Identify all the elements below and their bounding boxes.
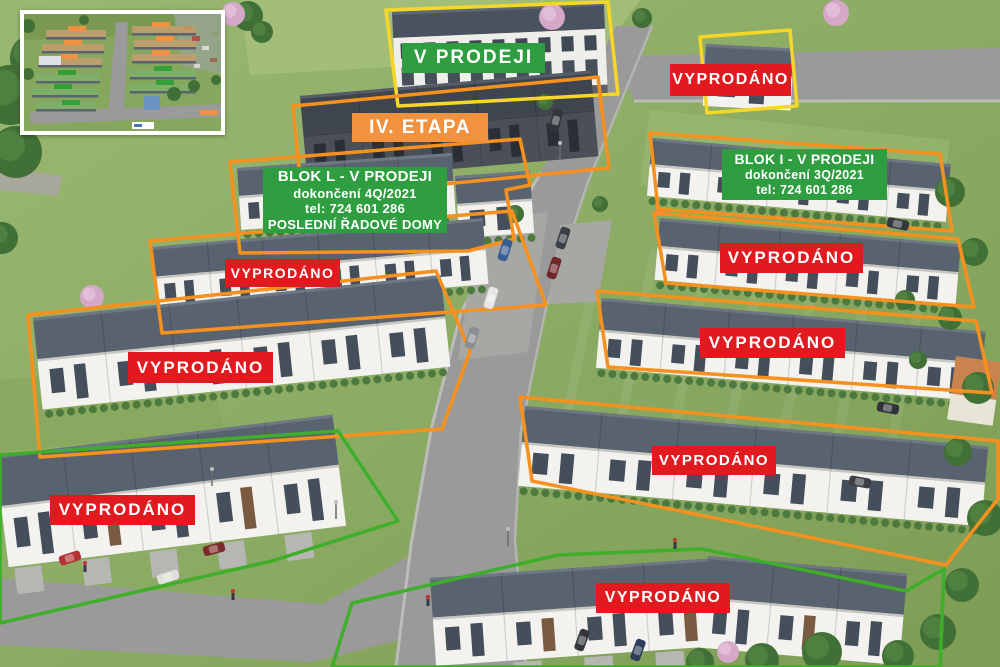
- status-badge-v-prodeji-top[interactable]: V PRODEJI: [402, 43, 545, 73]
- status-badge-vyprodano-top-right: VYPRODÁNO: [670, 64, 791, 96]
- status-badge-vyprodano-bottom-center: VYPRODÁNO: [596, 583, 730, 613]
- blok-i-phone: tel: 724 601 286: [722, 183, 887, 198]
- blok-l-completion: dokončení 4Q/2021: [263, 186, 447, 202]
- info-label-blok-i[interactable]: BLOK I - V PRODEJI dokončení 3Q/2021 tel…: [722, 149, 887, 200]
- status-badge-vyprodano-right-lower: VYPRODÁNO: [652, 446, 776, 475]
- status-badge-vyprodano-left-bottom: VYPRODÁNO: [50, 495, 195, 525]
- info-label-blok-l[interactable]: BLOK L - V PRODEJI dokončení 4Q/2021 tel…: [263, 167, 447, 233]
- status-badge-vyprodano-right-upper: VYPRODÁNO: [720, 243, 863, 273]
- status-badge-vyprodano-right-middle: VYPRODÁNO: [700, 328, 845, 358]
- development-site-plan: V PRODEJI VYPRODÁNO IV. ETAPA VYPRODÁNO …: [0, 0, 1000, 667]
- blok-i-title: BLOK I - V PRODEJI: [722, 151, 887, 168]
- status-badge-vyprodano-left-middle: VYPRODÁNO: [128, 352, 273, 383]
- blok-l-phone: tel: 724 601 286: [263, 201, 447, 217]
- blok-i-completion: dokončení 3Q/2021: [722, 168, 887, 183]
- overview-inset-map[interactable]: [20, 10, 225, 135]
- overview-inset-illustration: [24, 14, 221, 131]
- blok-l-title: BLOK L - V PRODEJI: [263, 168, 447, 186]
- status-badge-vyprodano-left-upper: VYPRODÁNO: [225, 259, 340, 287]
- stage-badge-iv-etapa: IV. ETAPA: [352, 113, 488, 142]
- blok-l-note: POSLEDNÍ ŘADOVÉ DOMY: [263, 217, 447, 233]
